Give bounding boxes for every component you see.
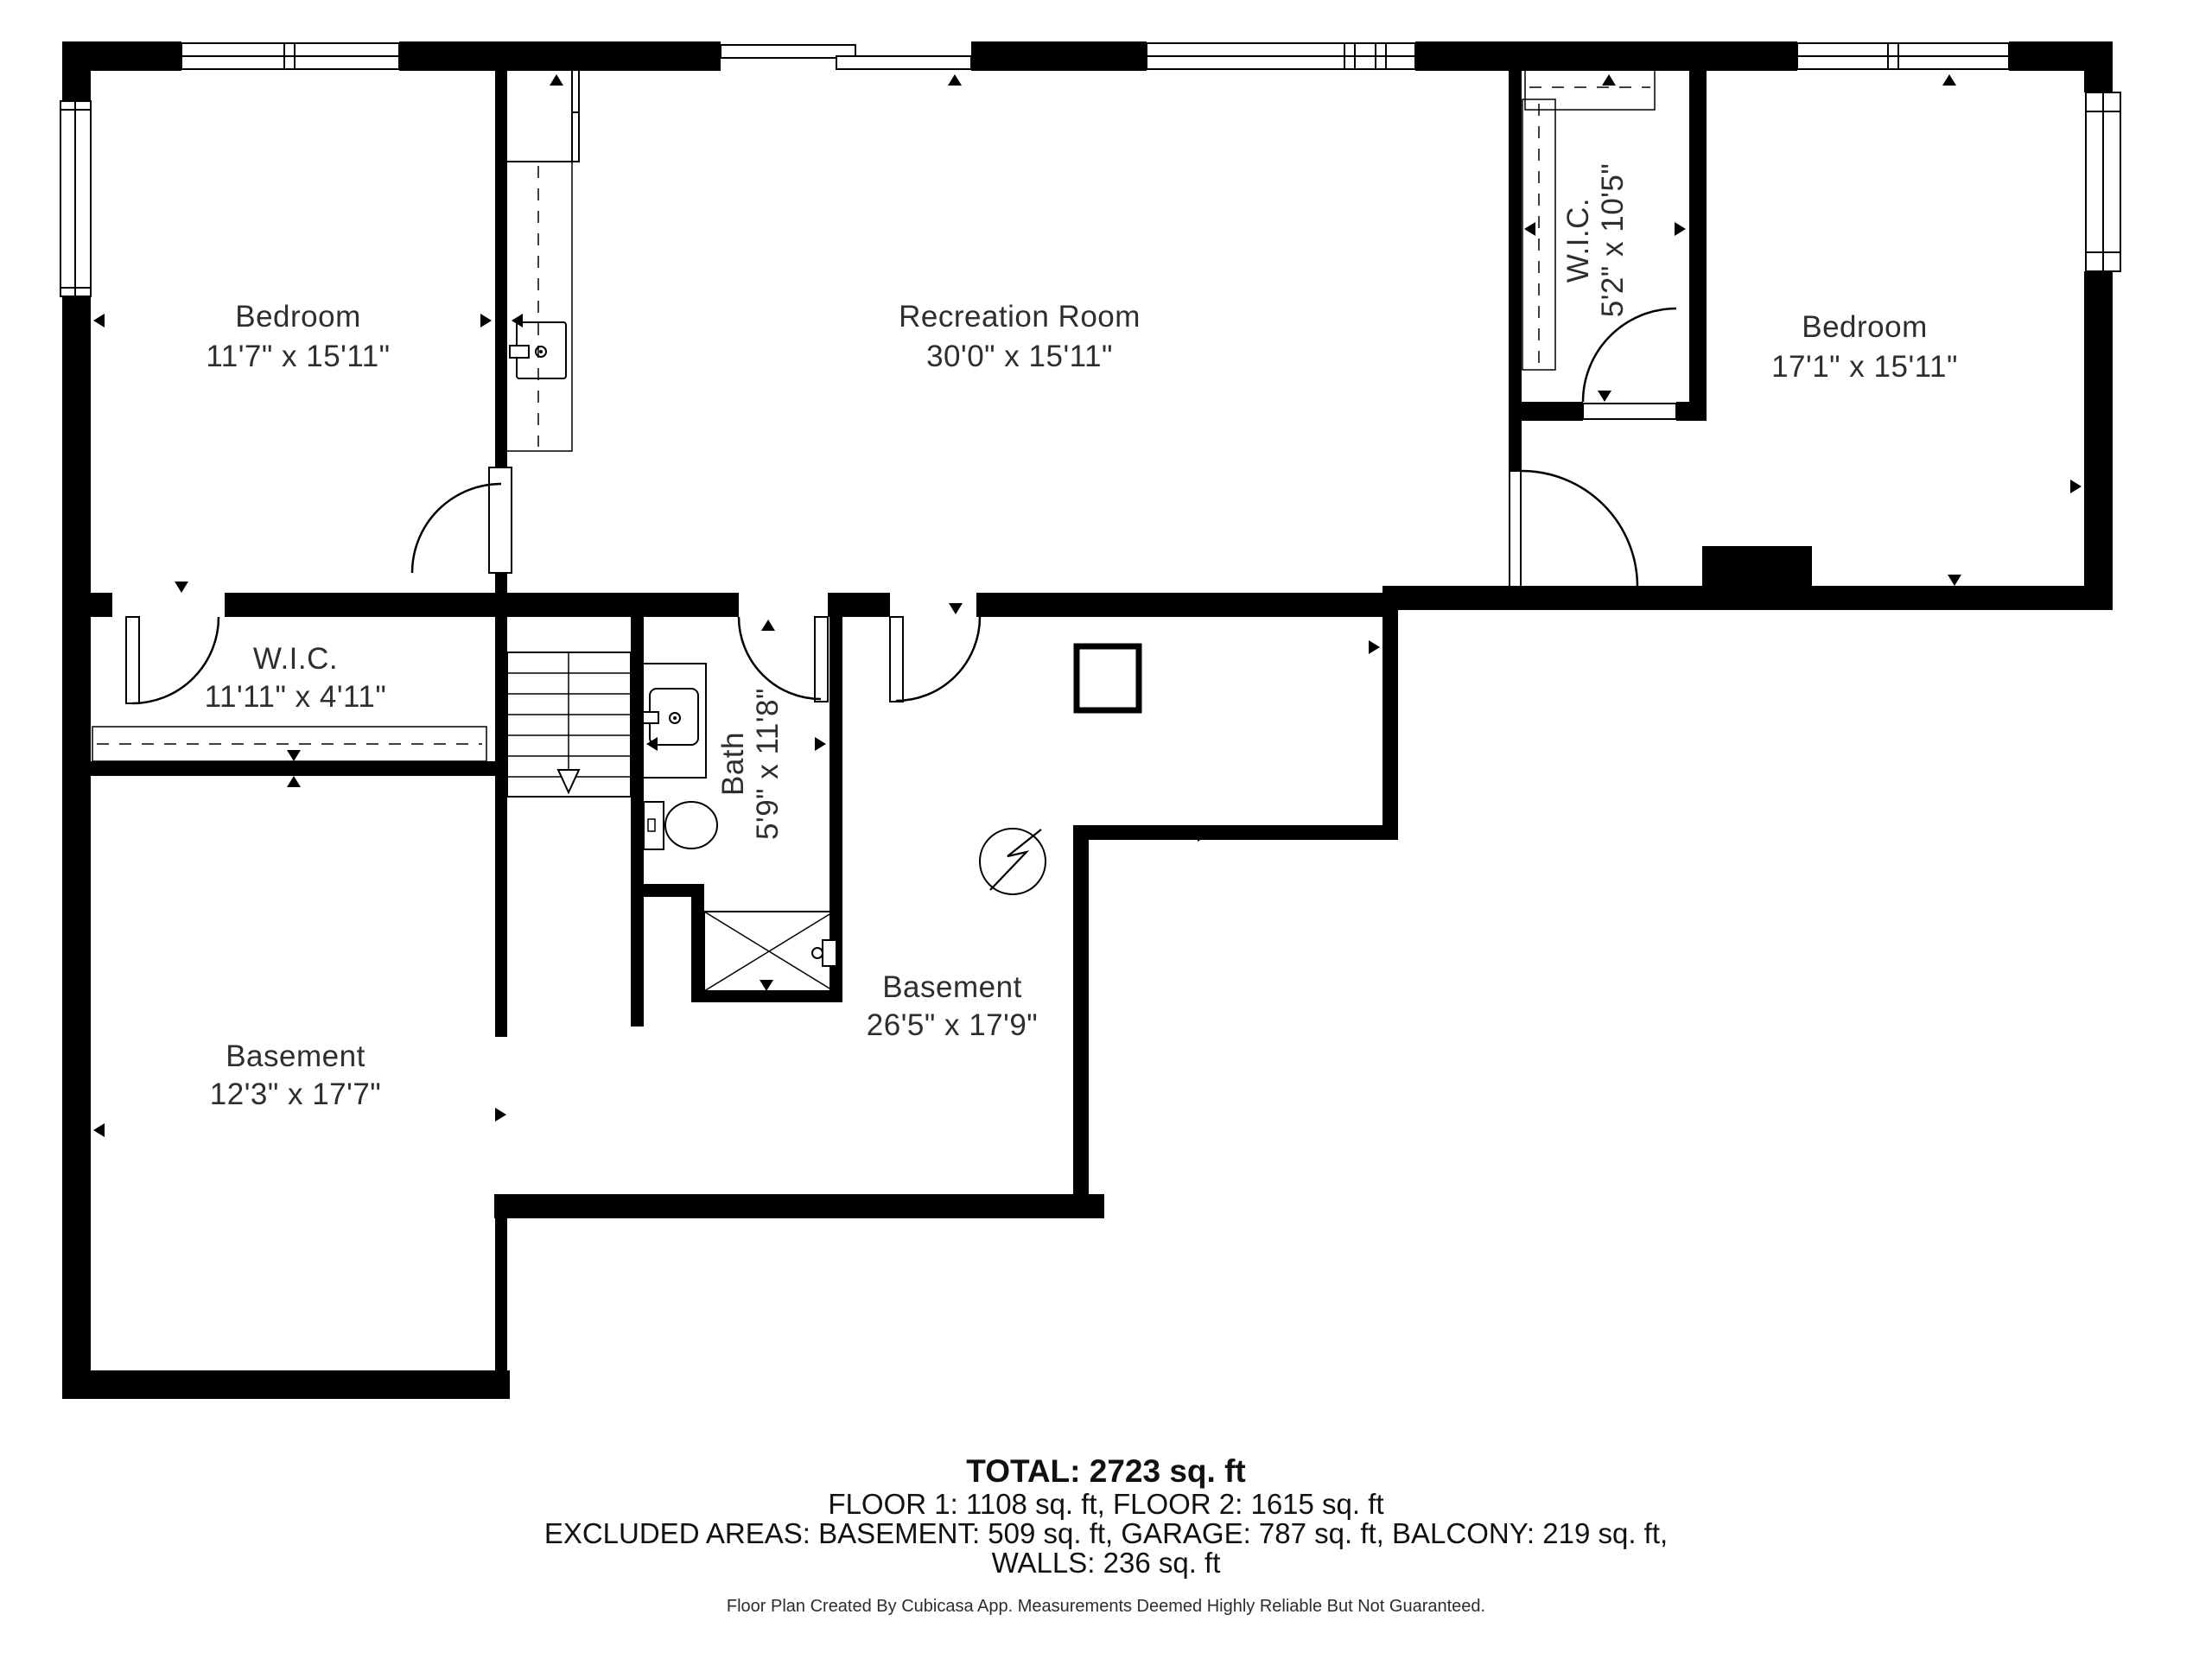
kitchenette-counter [505, 162, 572, 451]
closet-shelf-wic-upper-left [1522, 99, 1555, 370]
summary-walls: WALLS: 236 sq. ft [0, 1548, 2212, 1578]
room-name: Bedroom [235, 300, 361, 334]
summary-excluded: EXCLUDED AREAS: BASEMENT: 509 sq. ft, GA… [0, 1519, 2212, 1548]
window-top-rec [1147, 40, 1415, 73]
toilet [644, 802, 717, 849]
door-wic-upper [1583, 308, 1676, 419]
room-name: Basement [882, 970, 1022, 1004]
room-dims: 11'11" x 4'11" [205, 680, 387, 714]
kitchenette-cabinet [505, 67, 579, 162]
room-label-bedroom-right: Bedroom 17'1" x 15'11" [1771, 310, 1958, 384]
room-name: Basement [226, 1039, 365, 1073]
room-name: Recreation Room [899, 300, 1141, 334]
summary-floors: FLOOR 1: 1108 sq. ft, FLOOR 2: 1615 sq. … [0, 1490, 2212, 1519]
room-name: Bath [716, 732, 750, 796]
window-top-bedroom-right [1797, 40, 2009, 73]
walls [62, 41, 2113, 1399]
room-dims: 5'2" x 10'5" [1596, 163, 1630, 318]
electrical-panel-icon [980, 829, 1046, 894]
door-bedroom-right-entry [1510, 471, 1637, 587]
bathroom-vanity [639, 664, 706, 778]
room-name: Bedroom [1802, 310, 1928, 344]
window-left-bedroom-left [57, 101, 94, 296]
room-dims: 17'1" x 15'11" [1771, 350, 1958, 384]
room-dims: 26'5" x 17'9" [867, 1008, 1038, 1042]
room-label-wic-left: W.I.C. 11'11" x 4'11" [205, 642, 387, 714]
room-label-bedroom-left: Bedroom 11'7" x 15'11" [206, 300, 390, 373]
door-basement [890, 617, 980, 702]
room-label-recreation-room: Recreation Room 30'0" x 15'11" [899, 300, 1141, 373]
floor-plan-page: Bedroom 11'7" x 15'11" Recreation Room 3… [0, 0, 2212, 1659]
shower-head-icon [823, 940, 836, 966]
room-label-wic-upper: W.I.C. 5'2" x 10'5" [1561, 163, 1630, 318]
support-post [1077, 646, 1139, 710]
window-top-bedroom-left [181, 40, 399, 73]
room-dims: 30'0" x 15'11" [926, 340, 1113, 373]
room-label-basement-main: Basement 26'5" x 17'9" [867, 970, 1038, 1042]
room-dims: 11'7" x 15'11" [206, 340, 390, 373]
room-label-bath: Bath 5'9" x 11'8" [716, 688, 785, 840]
area-summary: TOTAL: 2723 sq. ft FLOOR 1: 1108 sq. ft,… [0, 1453, 2212, 1578]
room-name: W.I.C. [253, 642, 338, 676]
door-bedroom-left [412, 467, 512, 573]
window-right-bedroom-right [2082, 92, 2124, 271]
closet-rod-wic-left [92, 727, 486, 761]
summary-total: TOTAL: 2723 sq. ft [0, 1453, 2212, 1490]
closet-shelf-wic-upper-top [1525, 65, 1655, 110]
shower [704, 912, 836, 991]
room-dims: 5'9" x 11'8" [751, 688, 785, 840]
footer-disclaimer: Floor Plan Created By Cubicasa App. Meas… [0, 1597, 2212, 1617]
room-dims: 12'3" x 17'7" [210, 1077, 381, 1111]
room-name: W.I.C. [1561, 198, 1595, 283]
sliding-door-top-rec [721, 40, 971, 73]
room-label-basement-left: Basement 12'3" x 17'7" [210, 1039, 381, 1111]
staircase [507, 652, 631, 797]
floor-plan-drawing: Bedroom 11'7" x 15'11" Recreation Room 3… [0, 0, 2212, 1659]
